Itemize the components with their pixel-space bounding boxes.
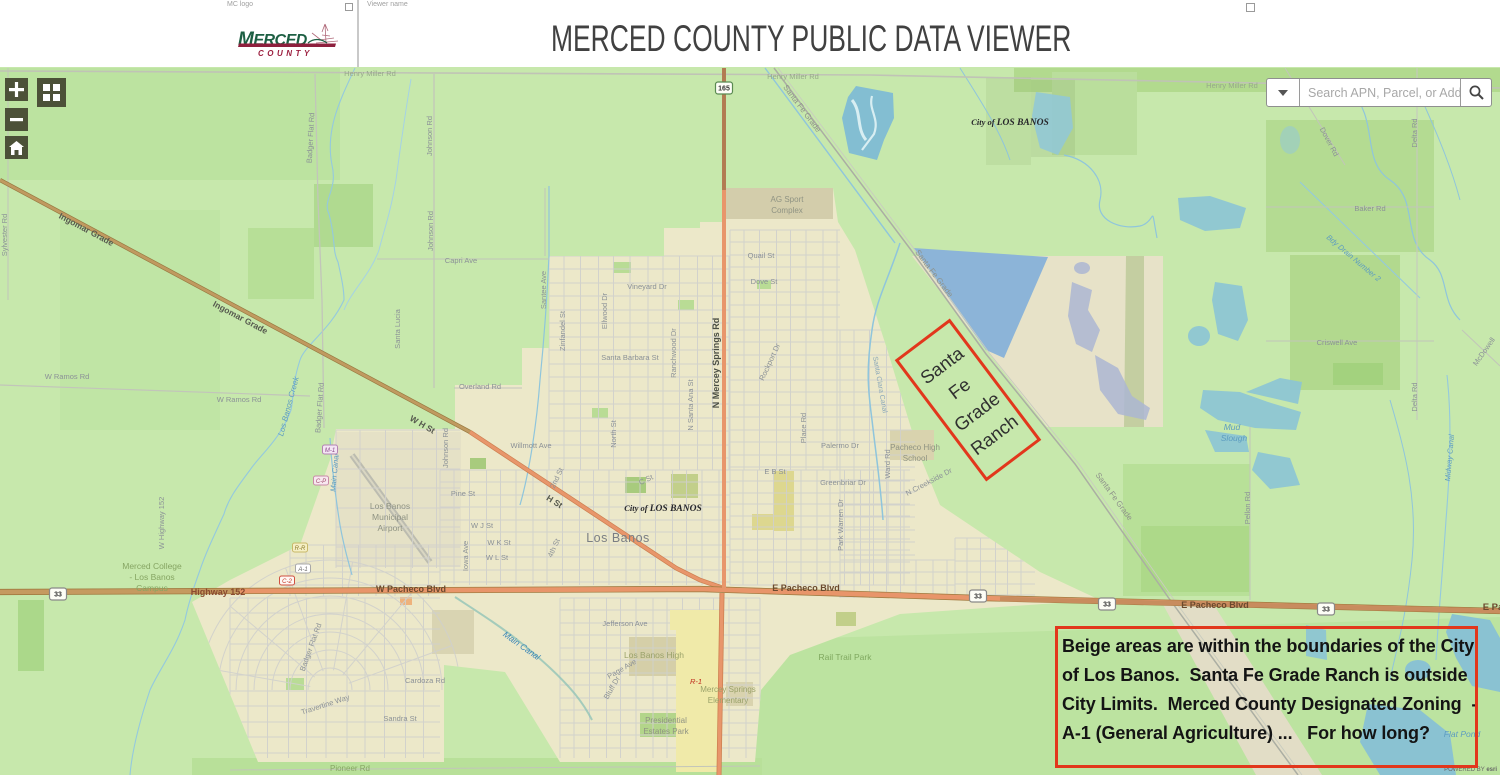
svg-text:E B St: E B St (764, 467, 786, 476)
svg-text:W Pacheco Blvd: W Pacheco Blvd (376, 584, 446, 594)
svg-text:A-1: A-1 (297, 567, 307, 573)
svg-text:Quail St: Quail St (748, 251, 776, 260)
svg-text:Henry Miller Rd: Henry Miller Rd (1206, 81, 1258, 90)
svg-text:Municipal: Municipal (372, 512, 408, 522)
svg-text:City of LOS BANOS: City of LOS BANOS (971, 117, 1049, 128)
svg-text:Vineyard Dr: Vineyard Dr (627, 282, 667, 291)
svg-text:Santee Ave: Santee Ave (539, 271, 548, 309)
svg-text:Slough: Slough (1221, 433, 1248, 443)
svg-text:Zinfandel St: Zinfandel St (558, 310, 567, 351)
svg-text:Capri Ave: Capri Ave (445, 256, 477, 265)
svg-text:W J St: W J St (471, 521, 494, 530)
svg-text:W L St: W L St (486, 553, 509, 562)
svg-text:33: 33 (54, 592, 62, 599)
svg-text:Johnson Rd: Johnson Rd (425, 116, 434, 156)
svg-text:165: 165 (718, 86, 730, 93)
svg-text:Airport: Airport (377, 523, 403, 533)
svg-text:33: 33 (1103, 602, 1111, 609)
svg-text:Jefferson Ave: Jefferson Ave (602, 619, 647, 628)
svg-text:Los Banos: Los Banos (370, 501, 410, 511)
svg-text:W Highway 152: W Highway 152 (157, 497, 166, 550)
svg-text:Baker Rd: Baker Rd (1354, 204, 1385, 213)
svg-text:Mud: Mud (1224, 422, 1241, 432)
svg-text:COUNTY: COUNTY (258, 49, 313, 58)
svg-text:Santa Lucia: Santa Lucia (393, 308, 402, 348)
svg-text:W K St: W K St (487, 538, 511, 547)
svg-text:Criswell Ave: Criswell Ave (1317, 338, 1358, 347)
svg-text:E Pacheco Blvd: E Pacheco Blvd (772, 583, 840, 593)
svg-text:Henry Miller Rd: Henry Miller Rd (767, 72, 819, 81)
svg-text:Pacheco High: Pacheco High (890, 443, 940, 452)
svg-text:- Los Banos: - Los Banos (129, 572, 174, 582)
svg-text:33: 33 (974, 594, 982, 601)
svg-text:AG Sport: AG Sport (771, 195, 805, 204)
svg-text:Pioneer Rd: Pioneer Rd (330, 764, 370, 773)
svg-text:Ellwood Dr: Ellwood Dr (600, 292, 609, 329)
svg-text:Presidential: Presidential (645, 716, 687, 725)
svg-text:W Ramos Rd: W Ramos Rd (45, 372, 90, 381)
svg-text:Henry Miller Rd: Henry Miller Rd (344, 69, 396, 78)
svg-text:Complex: Complex (771, 206, 803, 215)
svg-text:Los Banos: Los Banos (586, 531, 650, 545)
svg-text:Ward Rd: Ward Rd (883, 449, 892, 478)
svg-text:33: 33 (1322, 607, 1330, 614)
svg-text:Palermo Dr: Palermo Dr (821, 441, 859, 450)
svg-text:Ranchwood Dr: Ranchwood Dr (669, 328, 678, 378)
svg-text:N Mercey Springs Rd: N Mercey Springs Rd (711, 318, 721, 409)
svg-text:Place Rd: Place Rd (799, 413, 808, 443)
svg-text:Pellon Rd: Pellon Rd (1243, 492, 1252, 525)
svg-text:E Pacheco Blvd: E Pacheco Blvd (1181, 600, 1249, 610)
svg-text:Santa Barbara St: Santa Barbara St (601, 353, 659, 362)
svg-text:Delta Rd: Delta Rd (1410, 382, 1419, 411)
svg-text:Overland Rd: Overland Rd (459, 382, 501, 391)
svg-text:Campus: Campus (136, 583, 168, 593)
svg-text:Park Warren Dr: Park Warren Dr (836, 499, 845, 551)
svg-text:Dove St: Dove St (751, 277, 779, 286)
svg-text:Iowa Ave: Iowa Ave (461, 541, 470, 571)
svg-text:R-1: R-1 (690, 677, 702, 686)
svg-text:School: School (903, 454, 928, 463)
svg-text:Sylvester Rd: Sylvester Rd (0, 214, 9, 257)
svg-text:Johnson Rd: Johnson Rd (441, 428, 450, 468)
svg-text:Willmott Ave: Willmott Ave (510, 441, 551, 450)
svg-text:Pine St: Pine St (451, 489, 476, 498)
svg-text:Highway 152: Highway 152 (191, 587, 246, 597)
svg-text:C-P: C-P (316, 479, 326, 485)
svg-text:City of LOS BANOS: City of LOS BANOS (624, 503, 702, 514)
svg-text:Delta Rd: Delta Rd (1410, 118, 1419, 147)
svg-text:Elementary: Elementary (708, 696, 748, 705)
svg-text:Merced College: Merced College (122, 561, 182, 571)
svg-text:W Ramos Rd: W Ramos Rd (217, 395, 262, 404)
svg-text:R-R: R-R (295, 546, 306, 552)
svg-text:Cardoza Rd: Cardoza Rd (405, 676, 445, 685)
svg-text:M-1: M-1 (325, 448, 335, 454)
svg-text:C-2: C-2 (282, 579, 292, 585)
svg-text:Estates Park: Estates Park (643, 727, 689, 736)
svg-text:North St: North St (609, 419, 618, 447)
svg-text:Mercey Springs: Mercey Springs (700, 685, 756, 694)
svg-text:Johnson Rd: Johnson Rd (426, 211, 435, 251)
svg-text:N Santa Ana St: N Santa Ana St (686, 378, 695, 430)
svg-text:E Pa: E Pa (1483, 602, 1500, 613)
svg-text:Greenbriar Dr: Greenbriar Dr (820, 478, 866, 487)
svg-text:Rail Trail Park: Rail Trail Park (819, 652, 873, 662)
svg-text:Sandra St: Sandra St (383, 714, 417, 723)
